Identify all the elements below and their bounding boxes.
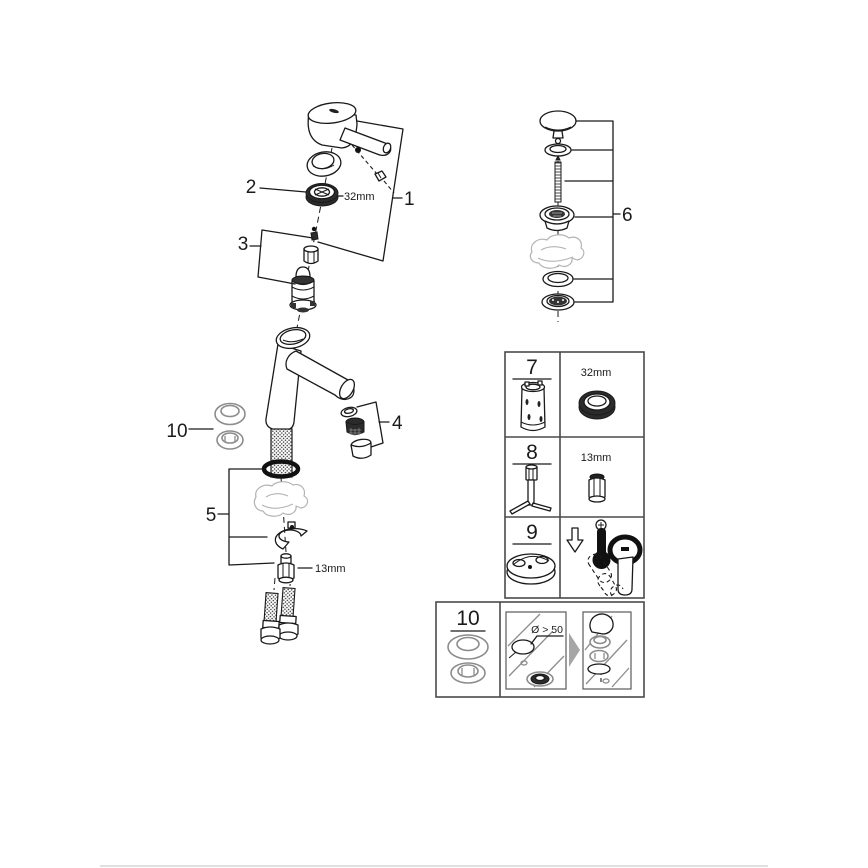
main-faucet-assembly: 1 2 3 4 5 10 32mm 13mm <box>166 100 414 644</box>
callout-6-label: 6 <box>622 205 633 226</box>
lever-handle <box>307 100 394 193</box>
row-8-number: 8 <box>526 441 538 464</box>
horseshoe-washer <box>275 522 307 549</box>
box-10-number: 10 <box>456 607 479 630</box>
row-9-number: 9 <box>526 521 538 544</box>
parts-table-row-7: 7 32mm <box>513 356 615 431</box>
cap-nut-32mm-icon <box>579 391 615 419</box>
drain-install-panel <box>583 612 631 689</box>
grub-screw <box>375 171 386 181</box>
box-10-rosette-washers-icon <box>448 635 488 683</box>
cartridge-socket-tool-icon <box>521 381 545 431</box>
mounting-base-icon <box>507 554 555 584</box>
ghost-mounting-foot <box>254 482 307 516</box>
thermometer-icon <box>593 520 611 569</box>
diagram-svg: 1 2 3 4 5 10 32mm 13mm <box>0 0 868 868</box>
threaded-shank <box>271 429 292 477</box>
drill-hole <box>512 640 534 654</box>
adapter-bushing <box>304 246 318 264</box>
callout-10-label: 10 <box>166 421 187 442</box>
aerator-mousseur <box>346 418 364 436</box>
mounting-nut-13mm <box>278 554 294 583</box>
basin-hole-panel: Ø > 50 <box>506 612 566 689</box>
row-7-size-label: 32mm <box>581 367 612 379</box>
drain-seal-ring <box>543 272 573 287</box>
installation-box: 10 Ø > 50 <box>436 602 644 697</box>
rosette-washers <box>215 404 245 450</box>
supply-hoses <box>261 588 298 644</box>
hole-diameter-label: Ø > 50 <box>531 624 563 636</box>
callout-3-label: 3 <box>238 234 249 255</box>
callout-1-label: 1 <box>404 189 415 210</box>
t-socket-wrench-icon <box>510 465 551 514</box>
label-32mm: 32mm <box>344 191 375 203</box>
drain-top-flange <box>540 206 574 231</box>
aerator-parts <box>340 406 371 458</box>
arrow-right-icon <box>569 633 580 667</box>
callout-5-bracket <box>218 469 274 565</box>
aerator-shroud <box>350 438 371 458</box>
callout-2-leader <box>260 188 306 192</box>
drain-assembly: 6 <box>530 111 632 322</box>
callout-5-label: 5 <box>206 505 217 526</box>
drain-bottom-flange <box>542 294 574 310</box>
parts-table-row-9: 9 <box>507 520 640 596</box>
plug-icon <box>590 614 613 634</box>
drain-washer <box>545 144 571 156</box>
callout-2-label: 2 <box>246 177 257 198</box>
row-8-size-label: 13mm <box>581 452 612 464</box>
drain-threaded-rod <box>555 156 561 202</box>
faucet-exploded-parts-diagram: 1 2 3 4 5 10 32mm 13mm <box>0 0 868 868</box>
label-13mm: 13mm <box>315 563 346 575</box>
parts-table: 7 32mm 8 <box>505 352 644 598</box>
drain-plug-cap <box>540 111 576 144</box>
cool-down-arrow-icon <box>567 528 583 552</box>
mounting-nut-13mm-icon <box>589 474 605 502</box>
row-7-number: 7 <box>526 356 538 379</box>
handle-dome-cap <box>305 149 343 179</box>
ghost-basin <box>530 235 583 268</box>
callout-4-label: 4 <box>392 413 403 434</box>
cap-nut-32mm <box>306 184 338 207</box>
cartridge <box>290 267 316 313</box>
